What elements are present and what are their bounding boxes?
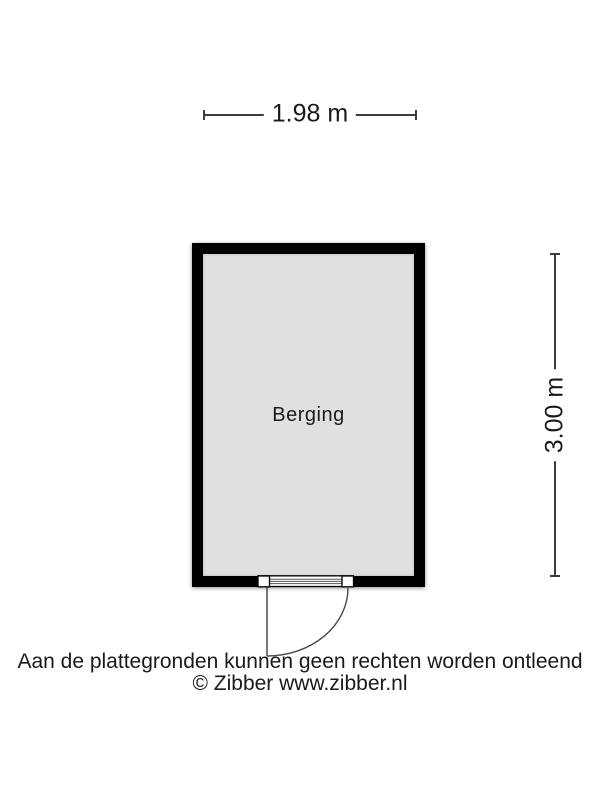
dimension-right-tick-top (550, 253, 560, 255)
dimension-top-tick-left (203, 110, 205, 120)
room-berging: Berging (192, 243, 425, 587)
room-label: Berging (272, 404, 344, 427)
dimension-right-tick-bottom (550, 575, 560, 577)
footer: Aan de plattegronden kunnen geen rechten… (0, 651, 600, 695)
dimension-top-tick-right (415, 110, 417, 120)
disclaimer-text: Aan de plattegronden kunnen geen rechten… (0, 651, 600, 673)
dimension-top-label: 1.98 m (264, 100, 356, 129)
copyright-text: © Zibber www.zibber.nl (0, 673, 600, 695)
door-jamb-right (342, 576, 354, 587)
floorplan-canvas: 1.98 m Berging 3.00 m Aan de plattegrond… (0, 0, 600, 800)
dimension-right-label: 3.00 m (541, 369, 570, 461)
door-jamb-left (258, 576, 270, 587)
door-swing-arc (267, 588, 348, 656)
